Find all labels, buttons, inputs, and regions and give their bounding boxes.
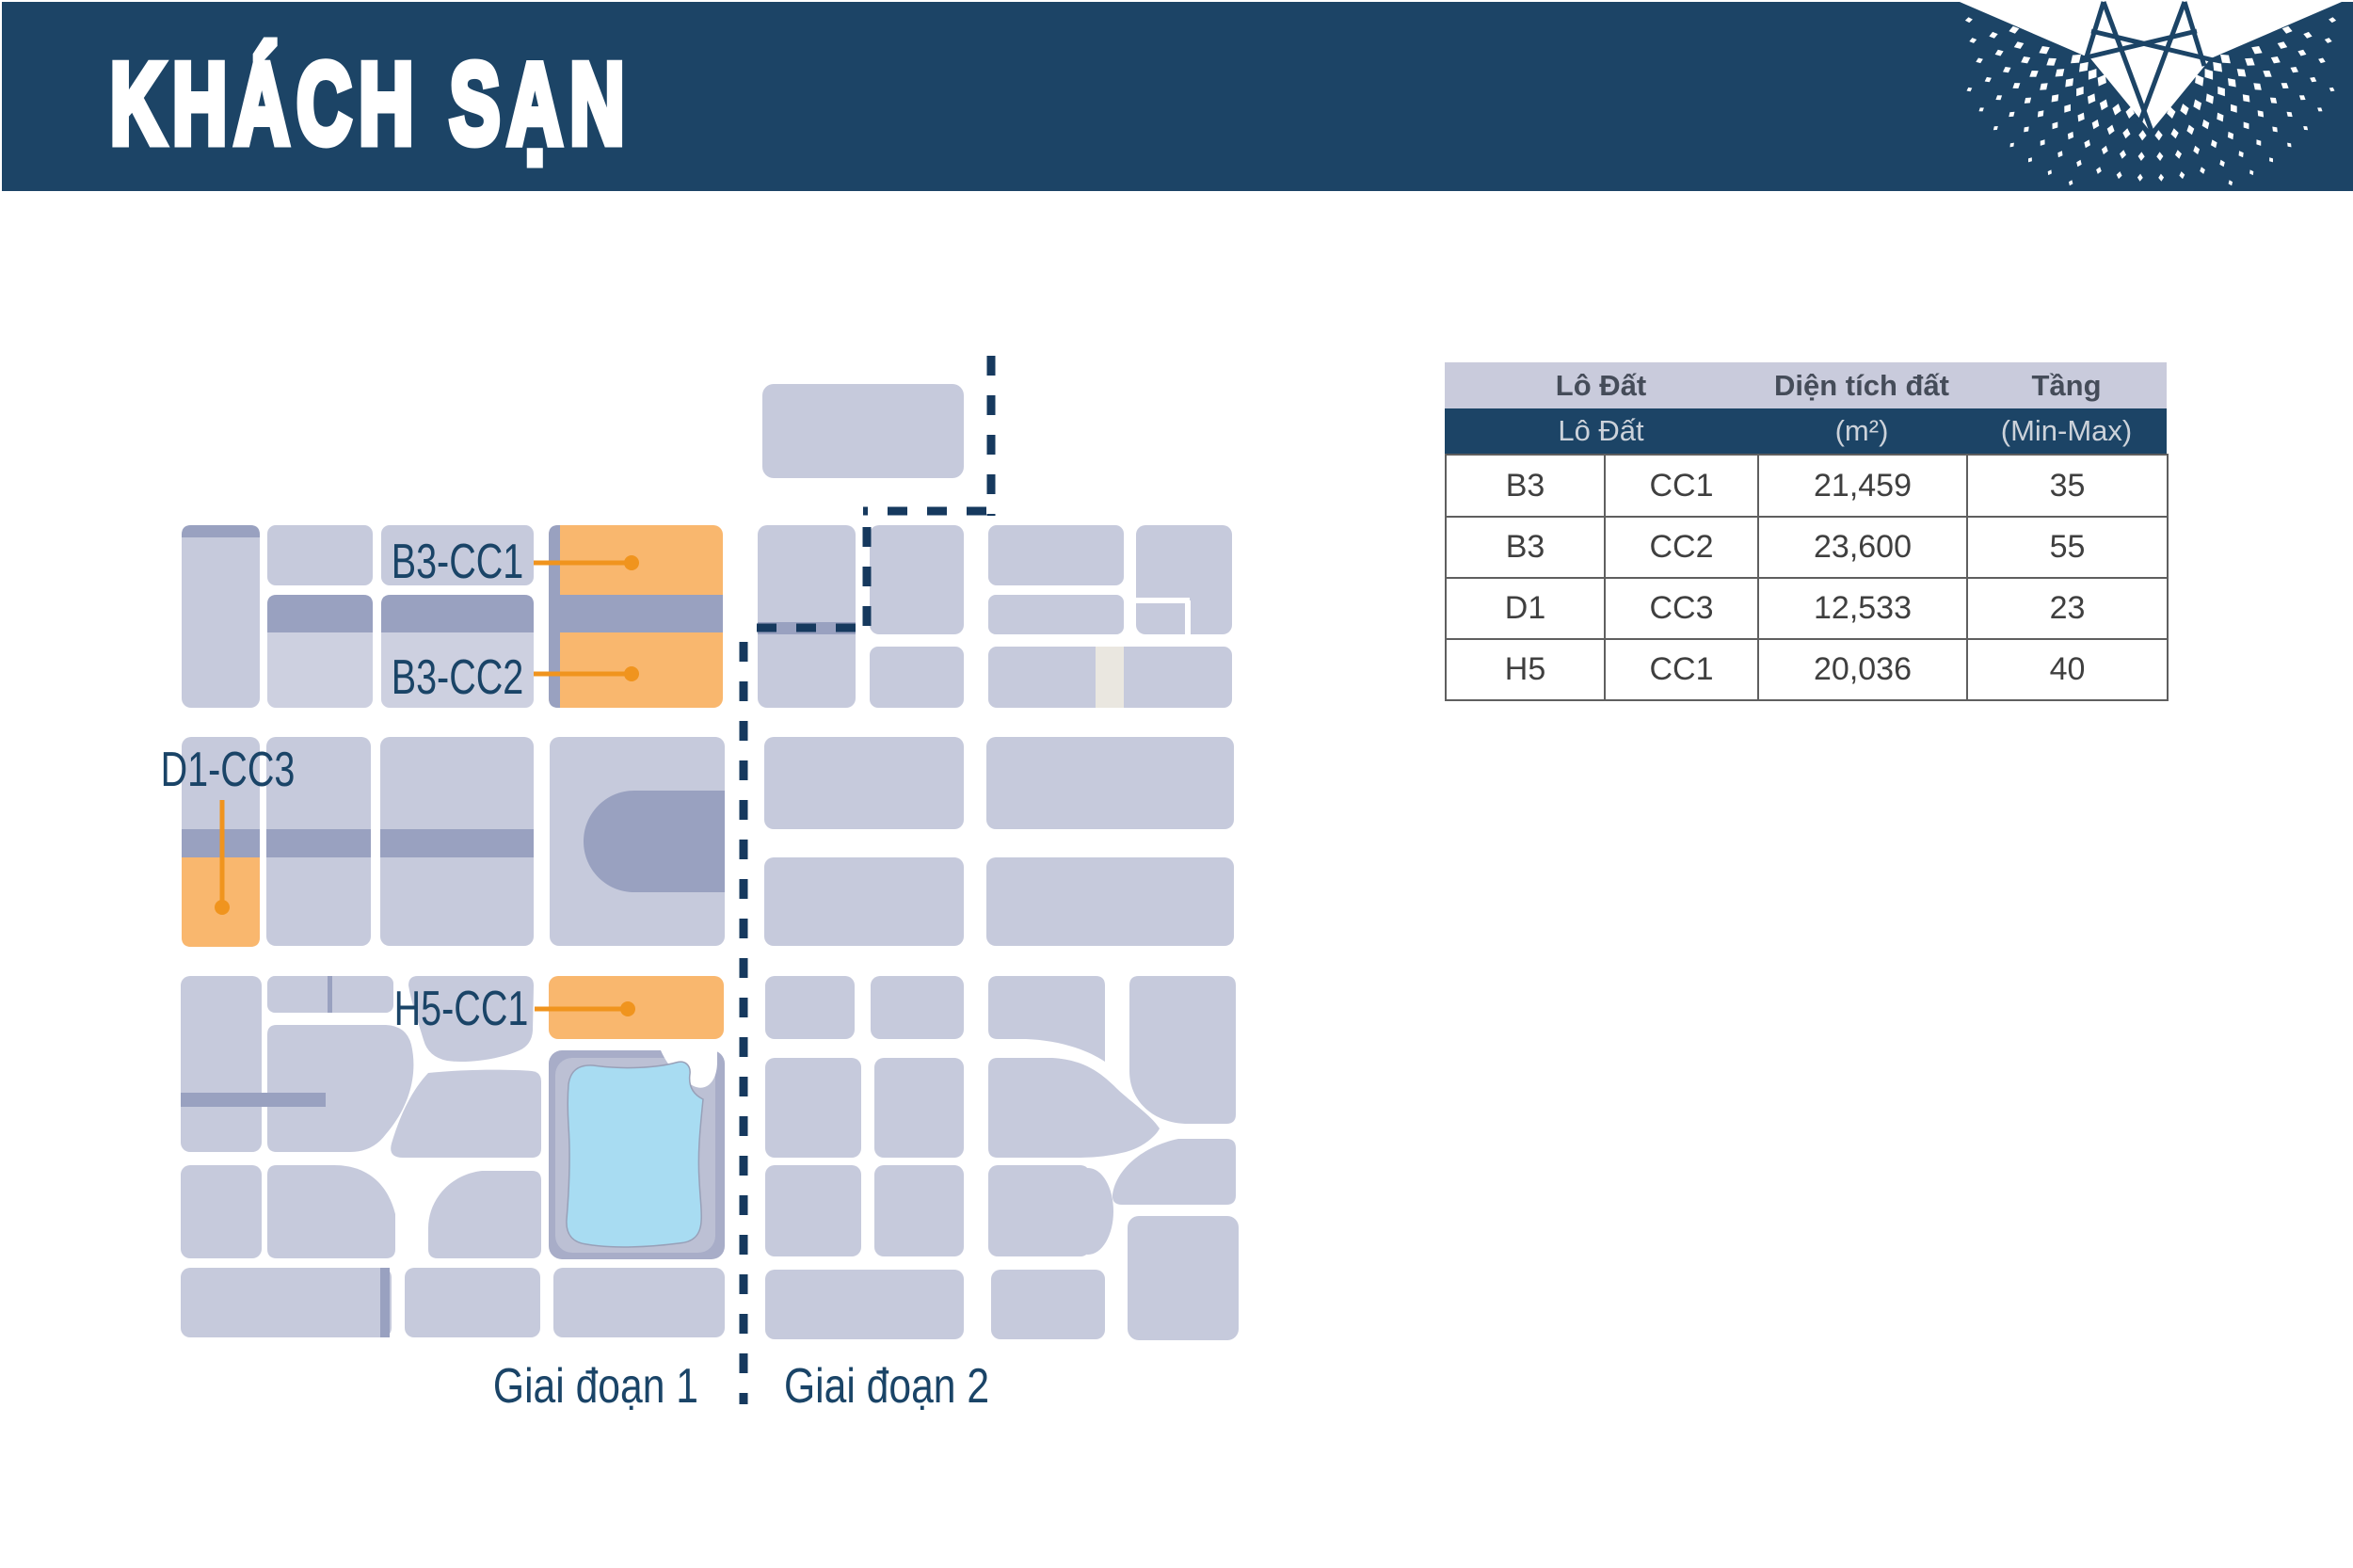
svg-text:B3-CC1: B3-CC1 xyxy=(392,534,524,589)
svg-text:D1-CC3: D1-CC3 xyxy=(161,742,296,797)
svg-text:Giai đoạn 1: Giai đoạn 1 xyxy=(493,1359,698,1414)
svg-text:H5-CC1: H5-CC1 xyxy=(394,981,529,1036)
svg-text:B3-CC2: B3-CC2 xyxy=(392,649,524,705)
svg-text:KHÁCH SẠN: KHÁCH SẠN xyxy=(110,39,632,168)
svg-text:Giai đoạn 2: Giai đoạn 2 xyxy=(784,1359,989,1414)
